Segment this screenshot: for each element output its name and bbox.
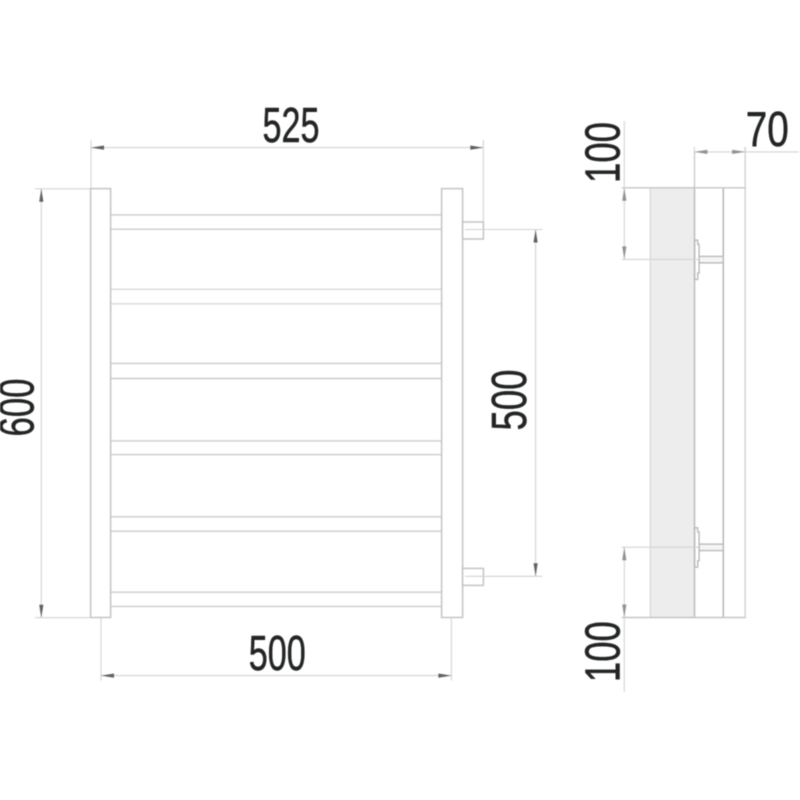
svg-text:600: 600 (0, 379, 45, 437)
svg-text:100: 100 (577, 621, 631, 682)
svg-text:100: 100 (577, 122, 631, 183)
svg-text:500: 500 (249, 627, 306, 681)
svg-text:70: 70 (746, 103, 789, 157)
svg-text:500: 500 (483, 370, 537, 431)
svg-text:525: 525 (263, 99, 320, 153)
